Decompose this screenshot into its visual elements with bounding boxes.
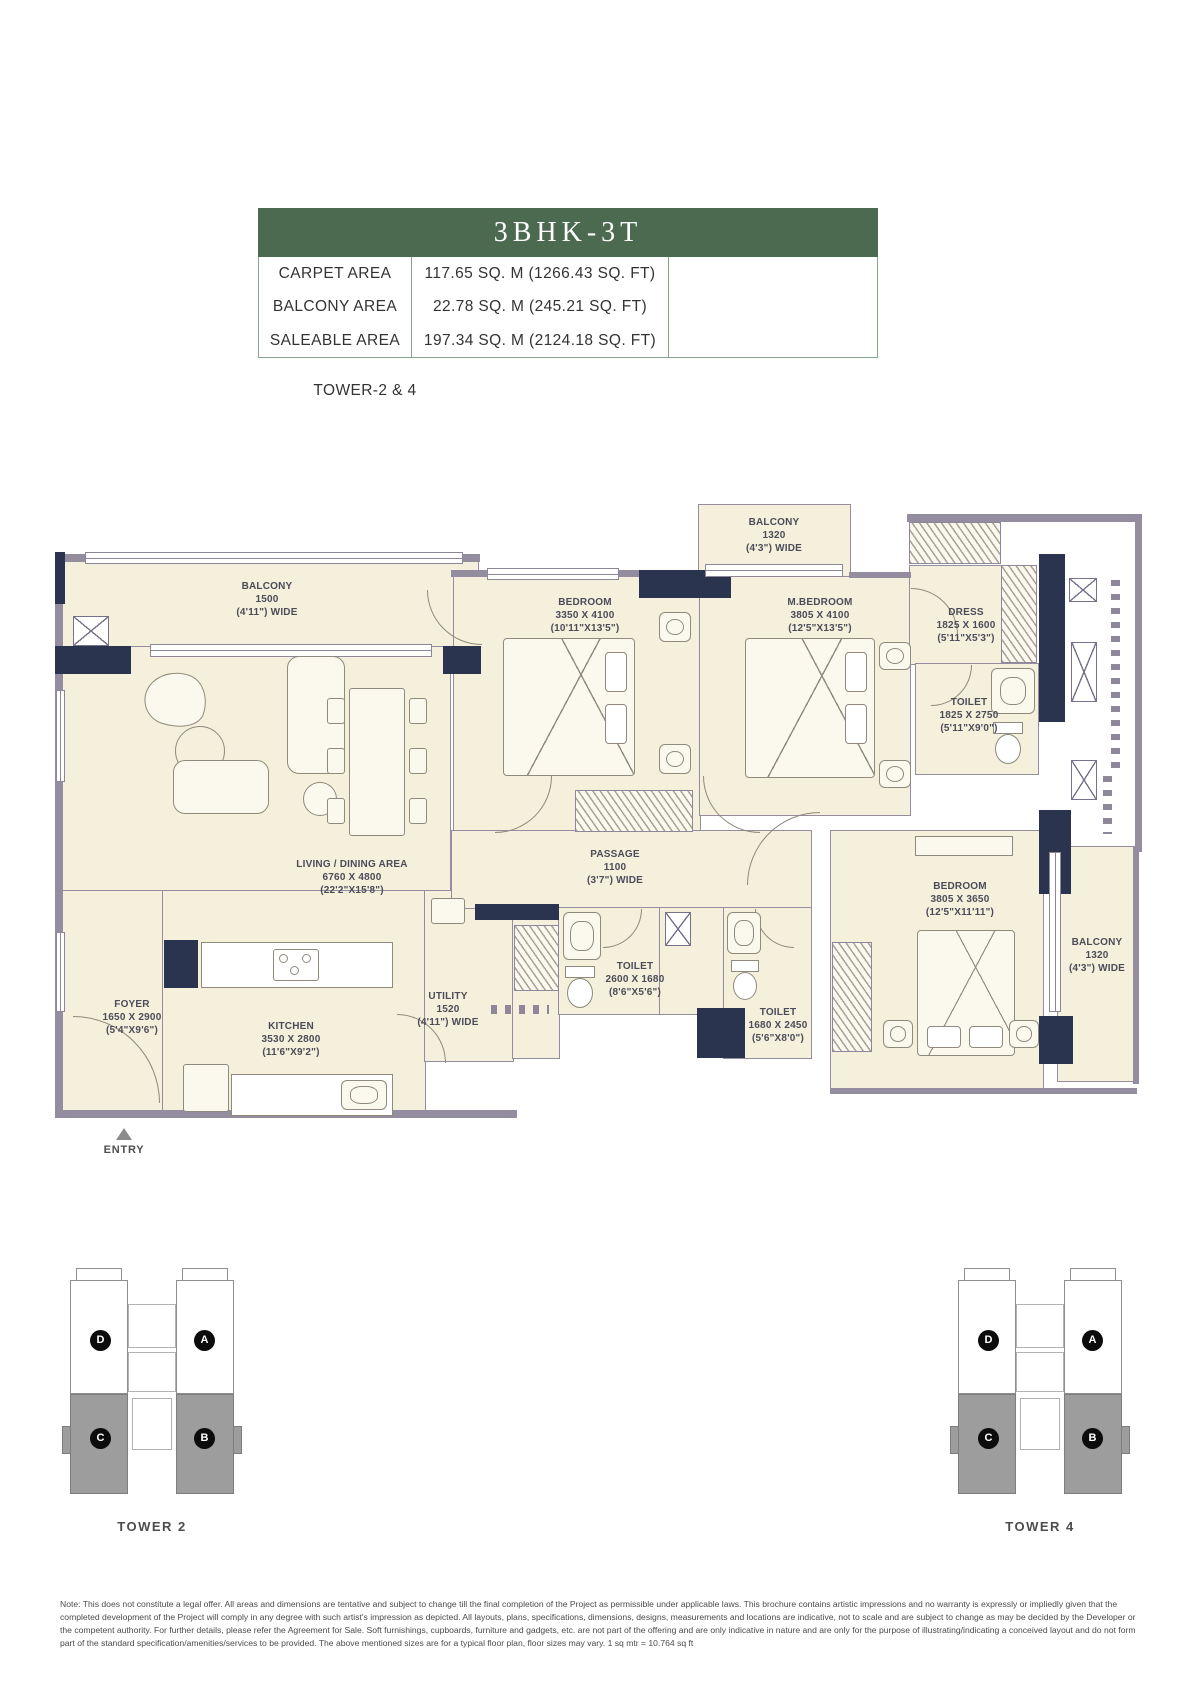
window	[1049, 852, 1061, 1012]
dining-table	[349, 688, 405, 836]
tower-core	[1020, 1398, 1060, 1450]
area-grid: CARPET AREA BALCONY AREA SALEABLE AREA 1…	[258, 257, 878, 358]
room-label-passage: PASSAGE 1100 (3'7") WIDE	[555, 848, 675, 888]
wall-segment	[830, 1088, 1137, 1094]
washbasin	[727, 912, 761, 954]
window	[56, 932, 65, 1012]
door-arc	[703, 776, 760, 833]
tower-core	[128, 1352, 176, 1392]
wc-tank	[731, 960, 759, 972]
shaft-box	[665, 912, 691, 946]
floor-plan: BALCONY 1500 (4'11") WIDE LIVING / DININ…	[55, 460, 1145, 1135]
wall-segment	[55, 554, 63, 1118]
ledge-teeth	[1111, 580, 1120, 770]
window	[150, 644, 432, 657]
unit-badge-c: C	[978, 1428, 999, 1449]
room-label-balcony-top: BALCONY 1320 (4'3") WIDE	[709, 516, 839, 556]
tower-4-keyplan: D A C B TOWER 4	[950, 1266, 1130, 1534]
window	[85, 552, 463, 564]
pillow	[969, 1026, 1003, 1048]
unit-badge-b: B	[194, 1428, 215, 1449]
nightstand-lamp	[879, 760, 911, 788]
stove	[273, 949, 319, 981]
pillow	[845, 652, 867, 692]
kitchen-sink	[341, 1080, 387, 1110]
room-label-kitchen: KITCHEN 3530 X 2800 (11'6"X9'2")	[235, 1020, 347, 1060]
pillow	[605, 652, 627, 692]
shaft-box	[1071, 760, 1097, 800]
unit-badge-a: A	[1082, 1330, 1103, 1351]
entry-arrow-icon	[116, 1128, 132, 1140]
washbasin	[563, 912, 601, 960]
tower-unit-tab	[950, 1426, 959, 1454]
wc-bowl	[995, 734, 1021, 764]
wc-bowl	[733, 972, 757, 1000]
tower-core	[132, 1398, 172, 1450]
wall-block	[1039, 1016, 1073, 1064]
tower-core	[128, 1304, 176, 1348]
nightstand-lamp	[659, 744, 691, 774]
tower-cell-text: TOWER-2 & 4	[259, 383, 471, 399]
wall-segment	[849, 572, 911, 578]
unit-badge-a: A	[194, 1330, 215, 1351]
nightstand-lamp	[879, 642, 911, 670]
room-label-dress: DRESS 1825 X 1600 (5'11"X5'3")	[910, 606, 1022, 646]
unit-badge-c: C	[90, 1428, 111, 1449]
legal-note: Note: This does not constitute a legal o…	[60, 1598, 1146, 1650]
room-label-utility: UTILITY 1520 (4'11") WIDE	[400, 990, 496, 1030]
window	[705, 564, 843, 577]
window	[487, 568, 619, 580]
room-label-bedroom-br: BEDROOM 3805 X 3650 (12'5"X11'11")	[900, 880, 1020, 920]
wall-block	[55, 646, 131, 674]
room-label-toilet-common: TOILET 2600 X 1680 (8'6"X5'6")	[580, 960, 690, 1000]
tower-unit-tab	[1121, 1426, 1130, 1454]
fridge	[183, 1064, 229, 1112]
entry-label: ENTRY	[92, 1144, 156, 1156]
tower-2-keyplan: D A C B TOWER 2	[62, 1266, 242, 1534]
room-label-balcony-right: BALCONY 1320 (4'3") WIDE	[1045, 936, 1149, 976]
room-label-bedroom-top: BEDROOM 3350 X 4100 (10'11"X13'5")	[520, 596, 650, 636]
room-label-living: LIVING / DINING AREA 6760 X 4800 (22'2"X…	[262, 858, 442, 898]
tower-unit-tab	[62, 1426, 71, 1454]
burner-icon	[290, 966, 299, 975]
burner-icon	[279, 954, 288, 963]
room-label-mtoilet: TOILET 1825 X 2750 (5'11"X9'0")	[913, 696, 1025, 736]
room-label-balcony-left: BALCONY 1500 (4'11") WIDE	[207, 580, 327, 620]
washing-machine	[431, 898, 465, 924]
room-label-mbedroom: M.BEDROOM 3805 X 4100 (12'5"X13'5")	[755, 596, 885, 636]
pillow	[927, 1026, 961, 1048]
wall-block	[55, 552, 65, 604]
unit-badge-d: D	[90, 1330, 111, 1351]
nightstand-lamp	[1009, 1020, 1039, 1048]
tower-caption: TOWER 2	[62, 1519, 242, 1534]
dining-chair	[409, 698, 427, 724]
nightstand-lamp	[883, 1020, 913, 1048]
unit-type-banner: 3BHK-3T	[258, 208, 878, 257]
dining-chair	[327, 748, 345, 774]
wall-block	[443, 646, 481, 674]
ledge-teeth	[1103, 776, 1112, 834]
nightstand-lamp	[659, 612, 691, 642]
room-label-toilet-3: TOILET 1680 X 2450 (5'6"X8'0")	[723, 1006, 833, 1046]
wardrobe-hatch	[575, 790, 693, 832]
unit-badge-d: D	[978, 1330, 999, 1351]
tower-core	[1016, 1304, 1064, 1348]
wall-block	[164, 940, 198, 988]
pillow	[605, 704, 627, 744]
wardrobe-hatch	[909, 522, 1001, 564]
wall-block	[1039, 554, 1065, 722]
shaft-box	[73, 616, 109, 646]
pillow	[845, 704, 867, 744]
dining-chair	[409, 798, 427, 824]
window	[56, 690, 65, 782]
area-spec-table: 3BHK-3T CARPET AREA BALCONY AREA SALEABL…	[258, 208, 878, 358]
ledge-teeth	[491, 1005, 549, 1014]
shaft-box	[1069, 578, 1097, 602]
dresser	[915, 836, 1013, 856]
dining-chair	[409, 748, 427, 774]
sofa	[173, 760, 269, 814]
entry-marker: ENTRY	[92, 1128, 156, 1156]
tower-core	[1016, 1352, 1064, 1392]
unit-badge-b: B	[1082, 1428, 1103, 1449]
wall-segment	[907, 514, 1142, 522]
room-label-foyer: FOYER 1650 X 2900 (5'4"X9'6")	[77, 998, 187, 1038]
burner-icon	[302, 954, 311, 963]
wall-segment	[1135, 514, 1142, 852]
brochure-page: 3BHK-3T CARPET AREA BALCONY AREA SALEABL…	[0, 0, 1200, 1695]
tower-caption: TOWER 4	[950, 1519, 1130, 1534]
dining-chair	[327, 698, 345, 724]
dining-chair	[327, 798, 345, 824]
tower-unit-tab	[233, 1426, 242, 1454]
shaft-box	[1071, 642, 1097, 702]
wall-block	[475, 904, 559, 920]
wardrobe-hatch	[832, 942, 872, 1052]
wardrobe-hatch	[514, 925, 559, 991]
